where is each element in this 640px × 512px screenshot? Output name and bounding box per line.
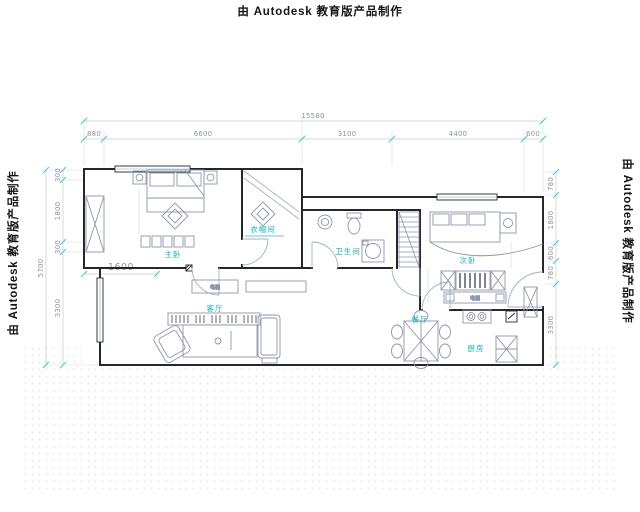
dim-left-segment-0: 300 (54, 168, 62, 182)
dim-right-segment-4: 3300 (547, 316, 555, 335)
dim-left-segment-1: 1800 (54, 202, 62, 221)
room-label-dining-room: 餐厅 (412, 315, 429, 324)
dim-left-segment-3: 3300 (54, 299, 62, 318)
wall-pier-hatch (186, 265, 192, 271)
dim-left-segment-2: 300 (54, 240, 62, 254)
floor-plan-svg: 15580 880 6600 3100 4400 600 5700 300 (0, 0, 640, 512)
room-label-kitchen: 厨房 (468, 343, 485, 353)
room-label-living-room: 客厅 (207, 303, 224, 313)
tv-cabinet-label: 电视 (210, 284, 220, 291)
room-label-cloakroom: 衣帽间 (250, 224, 276, 234)
dim-top-segment-3: 4400 (449, 130, 468, 138)
dim-right-segment-2: 600 (547, 246, 555, 260)
dim-right-segment-1: 1800 (547, 211, 555, 230)
dim-right-segment-0: 780 (547, 177, 555, 191)
room-label-master-bedroom: 主卧 (165, 249, 182, 259)
dim-top-segment-0: 880 (87, 130, 101, 138)
dim-top-segment-1: 6600 (194, 130, 213, 138)
cad-drawing-canvas: 由 Autodesk 教育版产品制作 由 Autodesk 教育版产品制作 由 … (0, 0, 640, 512)
dim-top-segment-2: 3100 (338, 130, 357, 138)
dim-right-segment-3: 780 (547, 266, 555, 280)
dim-left-total: 5700 (37, 259, 45, 278)
dimension-chain-right: 780 1800 600 780 3300 (545, 169, 560, 368)
dim-top-segment-4: 600 (526, 130, 540, 138)
room-label-bathroom: 卫生间 (335, 246, 361, 256)
dim-top-total: 15580 (301, 112, 324, 120)
bedroom-tv-label: 电视 (470, 295, 480, 302)
room-label-second-bedroom: 次卧 (460, 255, 477, 265)
